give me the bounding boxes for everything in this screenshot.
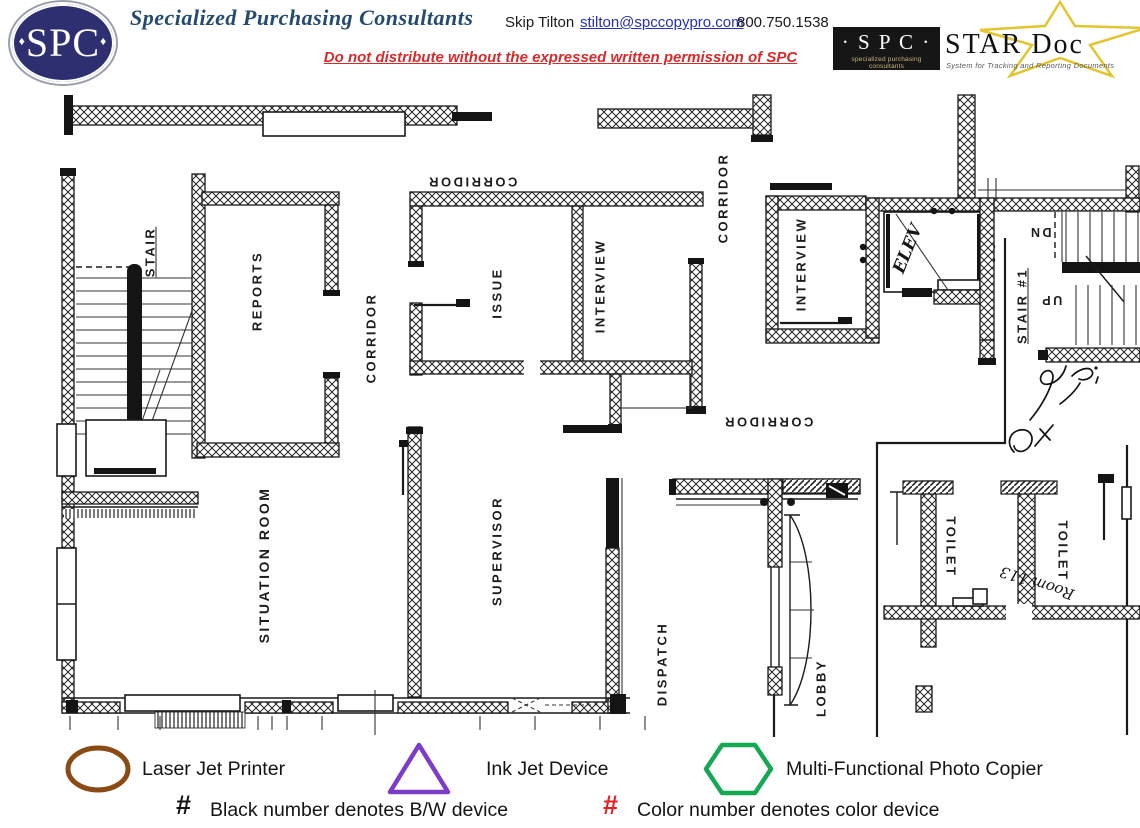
room-label-interview-1: INTERVIEW: [593, 239, 608, 334]
stair-down-label: DN: [1028, 225, 1051, 239]
room-label-corridor-2: CORRIDOR: [427, 175, 518, 190]
ink-jet-icon: [385, 741, 455, 797]
room-label-situation-room: SITUATION ROOM: [256, 487, 272, 644]
room-label-interview-2: INTERVIEW: [794, 217, 809, 312]
legend-label-ink-jet: Ink Jet Device: [486, 758, 608, 781]
legend-label-laser-jet: Laser Jet Printer: [142, 758, 285, 781]
copier-icon: [700, 741, 776, 797]
laser-jet-icon: [63, 744, 135, 796]
room-label-toilet-2: TOILET: [1056, 521, 1071, 582]
room-label-corridor-1: CORRIDOR: [364, 293, 379, 384]
room-label-stair-1: STAIR #1: [1015, 268, 1030, 344]
scanned-floorplan-page: ♦SPC♦ Specialized Purchasing Consultants…: [0, 0, 1140, 828]
room-label-stair: STAIR: [143, 227, 158, 278]
room-label-issue: ISSUE: [490, 267, 505, 319]
legend-note-bw: Black number denotes B/W device: [210, 799, 508, 822]
room-label-dispatch: DISPATCH: [655, 622, 670, 707]
red-hash-symbol: #: [603, 792, 618, 819]
legend-note-color: Color number denotes color device: [637, 799, 939, 822]
room-label-corridor-3: CORRIDOR: [716, 153, 731, 244]
room-label-reports: REPORTS: [250, 251, 265, 331]
black-hash-symbol: #: [176, 792, 191, 819]
room-label-lobby: LOBBY: [814, 659, 829, 717]
room-label-supervisor: SUPERVISOR: [490, 496, 505, 606]
room-label-toilet-1: TOILET: [944, 517, 959, 578]
room-label-corridor-4: CORRIDOR: [723, 415, 814, 430]
floor-plan-drawing: [0, 0, 1140, 828]
stair-up-label: UP: [1040, 293, 1062, 307]
legend-label-copier: Multi-Functional Photo Copier: [786, 758, 1043, 781]
